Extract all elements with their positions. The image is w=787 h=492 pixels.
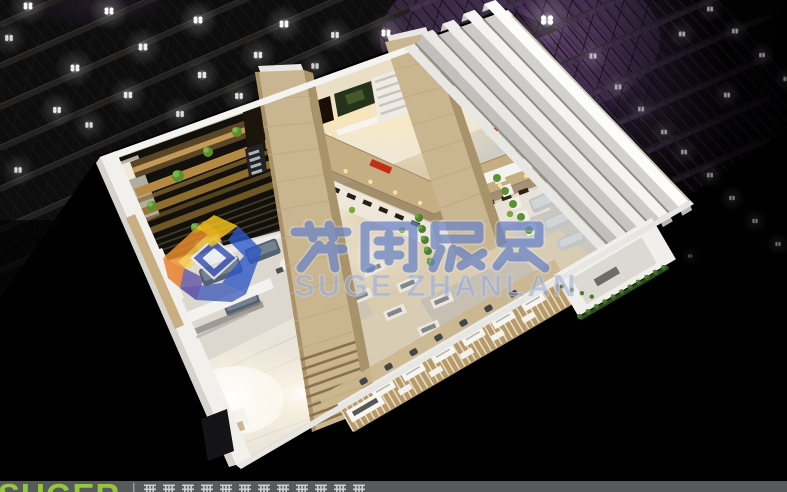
svg-text:SUGER: SUGER xyxy=(0,477,120,492)
svg-text:SUGE ZHANLAN: SUGE ZHANLAN xyxy=(294,268,579,303)
